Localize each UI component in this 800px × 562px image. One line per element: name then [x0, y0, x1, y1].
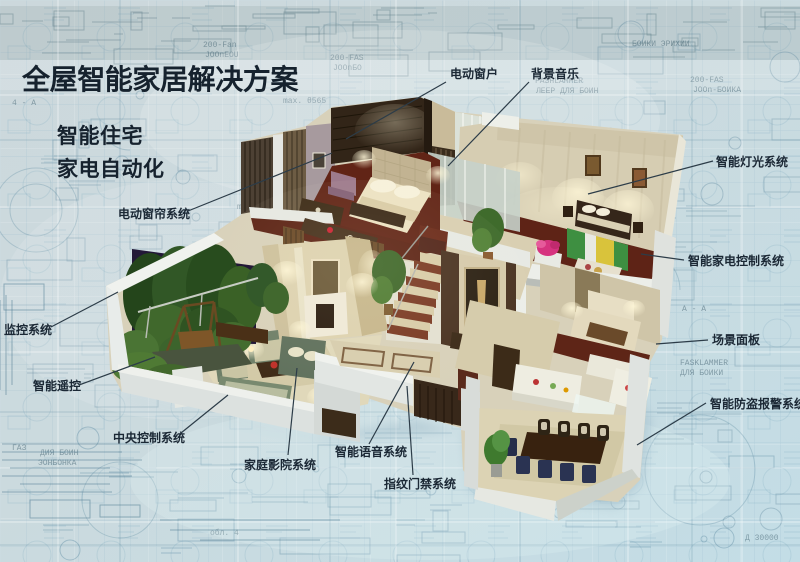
svg-text:ДИЯ БОИН: ДИЯ БОИН: [40, 449, 79, 458]
svg-text:监控系统: 监控系统: [4, 322, 52, 337]
svg-text:智能语音系统: 智能语音系统: [334, 444, 407, 459]
svg-text:智能灯光系统: 智能灯光系统: [715, 154, 788, 169]
svg-text:家电自动化: 家电自动化: [57, 157, 165, 181]
svg-text:电动窗户: 电动窗户: [450, 66, 498, 81]
svg-text:背景音乐: 背景音乐: [531, 66, 579, 81]
svg-text:电动窗帘系统: 电动窗帘系统: [118, 206, 190, 221]
svg-text:A - A: A - A: [682, 305, 706, 314]
svg-text:智能家电控制系统: 智能家电控制系统: [687, 253, 784, 268]
svg-text:4 - A: 4 - A: [12, 99, 36, 108]
svg-text:家庭影院系统: 家庭影院系统: [244, 457, 316, 472]
svg-text:Д 30000: Д 30000: [745, 534, 779, 543]
svg-text:智能住宅: 智能住宅: [57, 124, 143, 148]
svg-text:中央控制系统: 中央控制系统: [113, 430, 185, 445]
svg-text:指纹门禁系统: 指纹门禁系统: [384, 476, 456, 491]
svg-text:智能防盗报警系统: 智能防盗报警系统: [709, 396, 800, 411]
svg-text:БОИКИ ЭРИХИИ: БОИКИ ЭРИХИИ: [632, 40, 690, 49]
svg-text:场景面板: 场景面板: [712, 332, 761, 347]
svg-text:ДЛЯ БОИКИ: ДЛЯ БОИКИ: [680, 369, 723, 378]
svg-text:200-Fan: 200-Fan: [203, 41, 237, 50]
svg-text:全屋智能家居解决方案: 全屋智能家居解决方案: [21, 63, 299, 95]
svg-text:FASKLAMMER: FASKLAMMER: [680, 359, 728, 368]
svg-text:智能遥控: 智能遥控: [32, 378, 81, 393]
